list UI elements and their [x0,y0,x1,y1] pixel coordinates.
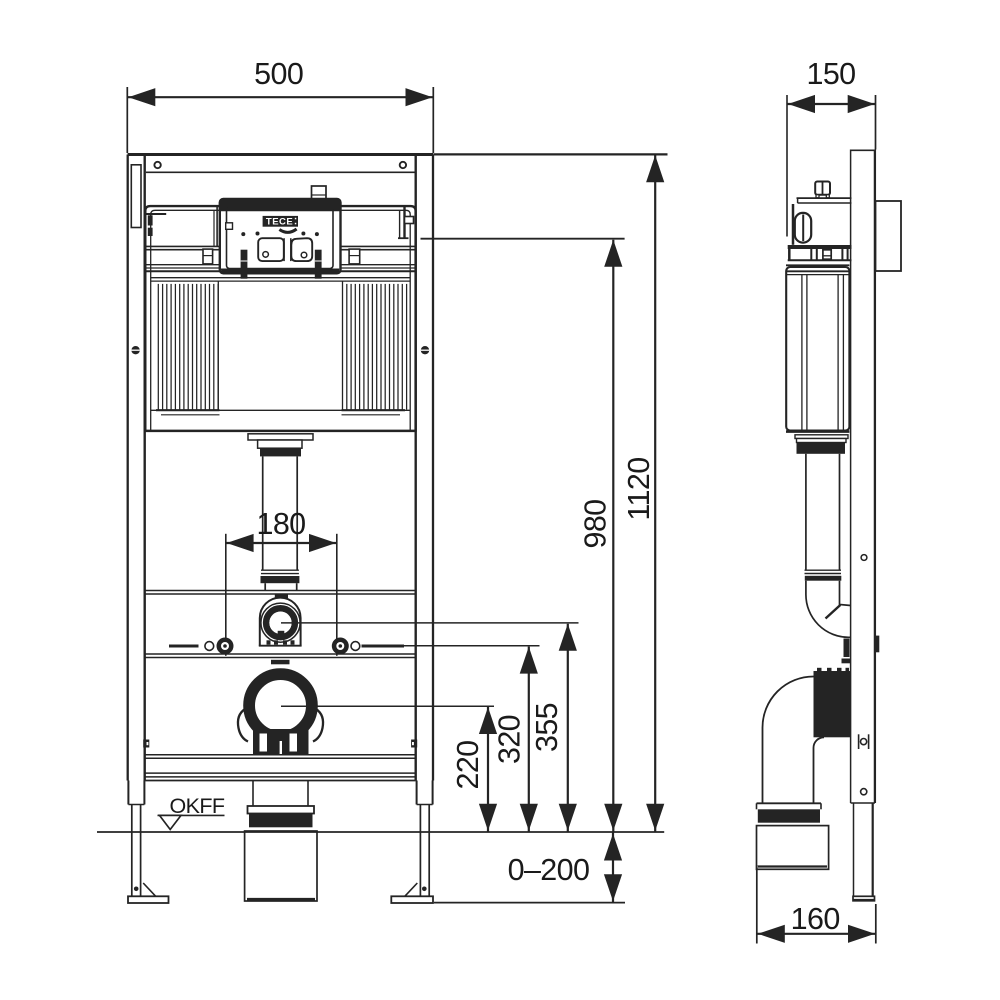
svg-text:180: 180 [256,507,305,541]
svg-text:355: 355 [530,703,564,752]
svg-text:1120: 1120 [622,457,656,520]
svg-text:980: 980 [578,499,612,548]
svg-text:160: 160 [791,902,840,936]
svg-text:220: 220 [451,740,485,789]
svg-text:150: 150 [806,57,855,91]
svg-text:500: 500 [254,57,303,91]
svg-text:TECE: TECE [266,216,293,227]
svg-text:0–200: 0–200 [508,853,590,887]
svg-text:320: 320 [492,715,526,764]
svg-text:OKFF: OKFF [170,794,225,818]
